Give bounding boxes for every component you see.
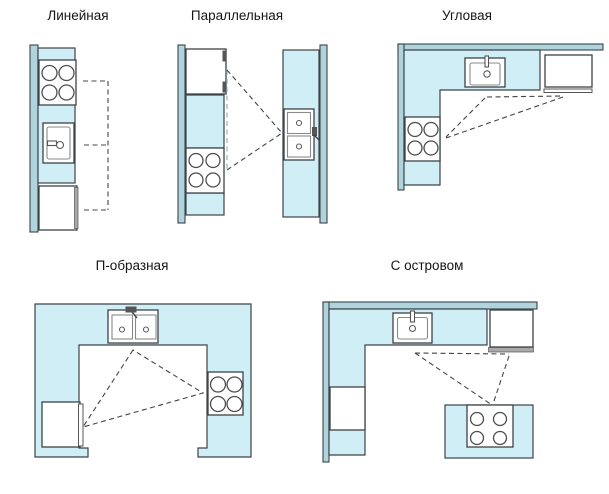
wall-top [323, 302, 537, 309]
u-shaped-plan-drawing [25, 258, 265, 468]
island-plan-drawing [315, 258, 545, 473]
stove-icon [467, 405, 513, 447]
stove-icon [39, 60, 76, 105]
diagram-linear: Линейная [20, 8, 155, 240]
sink-icon [43, 123, 74, 163]
diagram-parallel: Параллельная [170, 8, 335, 233]
sink-icon [465, 56, 505, 87]
work-triangle-dashes [227, 70, 282, 170]
parallel-plan-drawing [170, 8, 335, 233]
diagram-u-shaped: П-образная [25, 258, 265, 468]
diagram-corner: Угловая [390, 8, 609, 198]
refrigerator-icon [186, 49, 226, 94]
refrigerator-icon [489, 310, 534, 352]
double-sink-icon [108, 307, 158, 344]
wall [30, 45, 38, 232]
wall-top [398, 44, 603, 50]
wall-right [320, 45, 327, 223]
island-with-stove [445, 405, 533, 458]
corner-plan-drawing [390, 8, 609, 198]
refrigerator-icon [39, 186, 78, 230]
work-line-dashes [83, 81, 108, 210]
counter-left-lower [186, 193, 224, 215]
diagram-island: С островом [315, 258, 545, 473]
double-sink-icon [284, 109, 319, 160]
wall-left [323, 302, 329, 462]
wall-left [398, 44, 404, 190]
linear-plan-drawing [20, 8, 155, 240]
refrigerator-icon [544, 55, 592, 93]
stove-icon [208, 372, 243, 415]
work-triangle-dashes [415, 353, 509, 405]
stove-icon [405, 117, 440, 161]
sink-icon [393, 311, 432, 343]
kitchen-layouts-figure: Линейная Параллельная [0, 0, 609, 494]
work-triangle-dashes [446, 96, 563, 138]
work-triangle-dashes [83, 350, 203, 427]
counter-left-upper [186, 95, 224, 148]
dishwasher-icon [330, 387, 365, 430]
stove-icon [186, 148, 224, 193]
wall-left [178, 45, 185, 223]
refrigerator-icon [42, 402, 83, 447]
